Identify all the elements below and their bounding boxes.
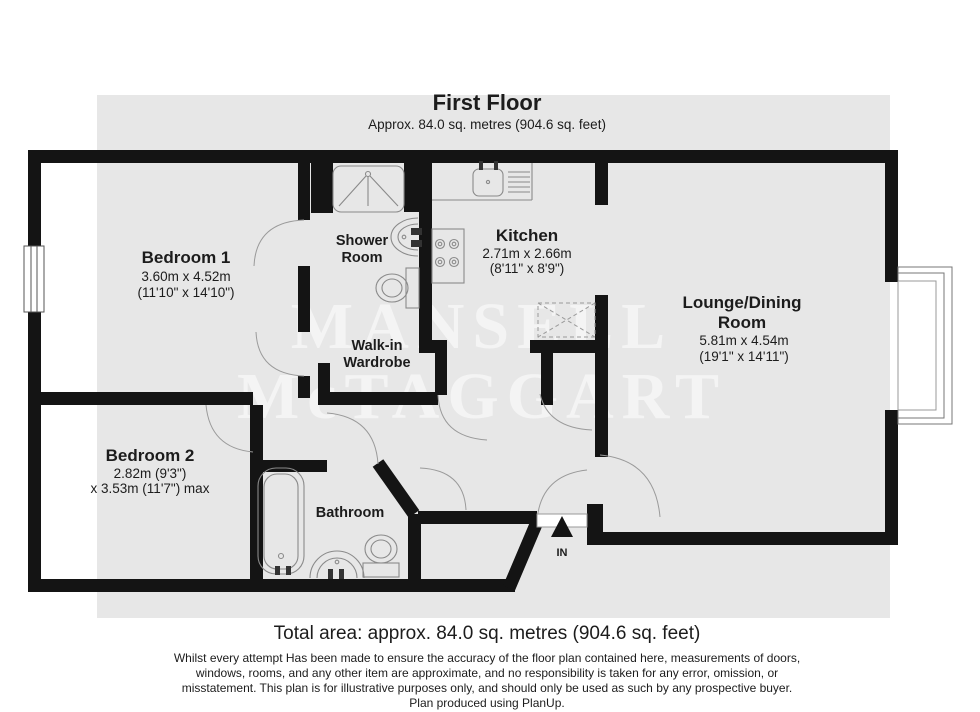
disclaimer-line: misstatement. This plan is for illustrat… (182, 681, 793, 695)
disclaimer-line: windows, rooms, and any other item are a… (195, 666, 778, 680)
footer: Total area: approx. 84.0 sq. metres (904… (174, 623, 800, 710)
wardrobe-name-2: Wardrobe (343, 355, 410, 371)
disclaimer-line: Plan produced using PlanUp. (409, 696, 564, 710)
wall-segment (298, 266, 310, 332)
watermark-line2: McTAGGART (237, 360, 727, 433)
total-area: Total area: approx. 84.0 sq. metres (904… (274, 623, 701, 644)
wall-segment (28, 150, 898, 163)
floorplan-page: MANSELL McTAGGART (0, 0, 980, 712)
shower-room-name-2: Room (341, 250, 382, 266)
wall-segment (250, 460, 327, 472)
lounge-name-1: Lounge/Dining (683, 293, 802, 312)
floorplan-canvas: MANSELL McTAGGART (0, 0, 980, 712)
wall-segment (419, 163, 432, 353)
wall-segment (250, 460, 263, 592)
wall-segment (28, 150, 41, 592)
kitchen-name: Kitchen (496, 226, 558, 245)
disclaimer-line: Whilst every attempt Has been made to en… (174, 651, 800, 665)
wall-segment (885, 150, 898, 282)
page-title: First Floor (433, 90, 542, 115)
wall-segment (541, 353, 553, 405)
watermark: MANSELL McTAGGART (237, 290, 727, 433)
wardrobe-name-1: Walk-in (351, 338, 402, 354)
wall-segment (41, 392, 253, 405)
bedroom1-dims-metric: 3.60m x 4.52m (141, 269, 230, 284)
page-subtitle: Approx. 84.0 sq. metres (904.6 sq. feet) (368, 117, 606, 132)
kitchen-dims-metric: 2.71m x 2.66m (482, 246, 571, 261)
watermark-line1: MANSELL (291, 290, 673, 363)
wall-segment (298, 376, 310, 398)
wall-segment (298, 163, 310, 220)
kitchen-dims-imperial: (8'11" x 8'9") (490, 261, 565, 276)
bedroom2-name: Bedroom 2 (106, 446, 195, 465)
wall-segment (592, 532, 898, 545)
wall-segment (595, 295, 608, 457)
bedroom2-dims-1: 2.82m (9'3") (114, 466, 187, 481)
wall-segment (418, 511, 537, 524)
wall-segment (311, 163, 333, 213)
lounge-dims-metric: 5.81m x 4.54m (699, 333, 788, 348)
wall-segment (318, 392, 438, 405)
bathroom-name: Bathroom (316, 505, 384, 521)
wall-segment (595, 163, 608, 205)
bay-window (898, 267, 952, 424)
wall-segment (404, 163, 419, 212)
wall-segment (885, 410, 898, 545)
bedroom1-dims-imperial: (11'10" x 14'10") (137, 285, 234, 300)
bedroom2-dims-2: x 3.53m (11'7") max (91, 481, 210, 496)
wall-segment (28, 579, 515, 592)
entrance-label: IN (557, 547, 568, 559)
wall-segment (419, 340, 447, 353)
wall-segment (318, 363, 330, 392)
window-left (24, 246, 44, 312)
wall-segment (435, 353, 447, 395)
lounge-name-2: Room (718, 313, 766, 332)
lounge-dims-imperial: (19'1" x 14'11") (699, 349, 789, 364)
bedroom1-name: Bedroom 1 (142, 248, 231, 267)
wall-segment (408, 514, 421, 592)
shower-room-name-1: Shower (336, 233, 389, 249)
